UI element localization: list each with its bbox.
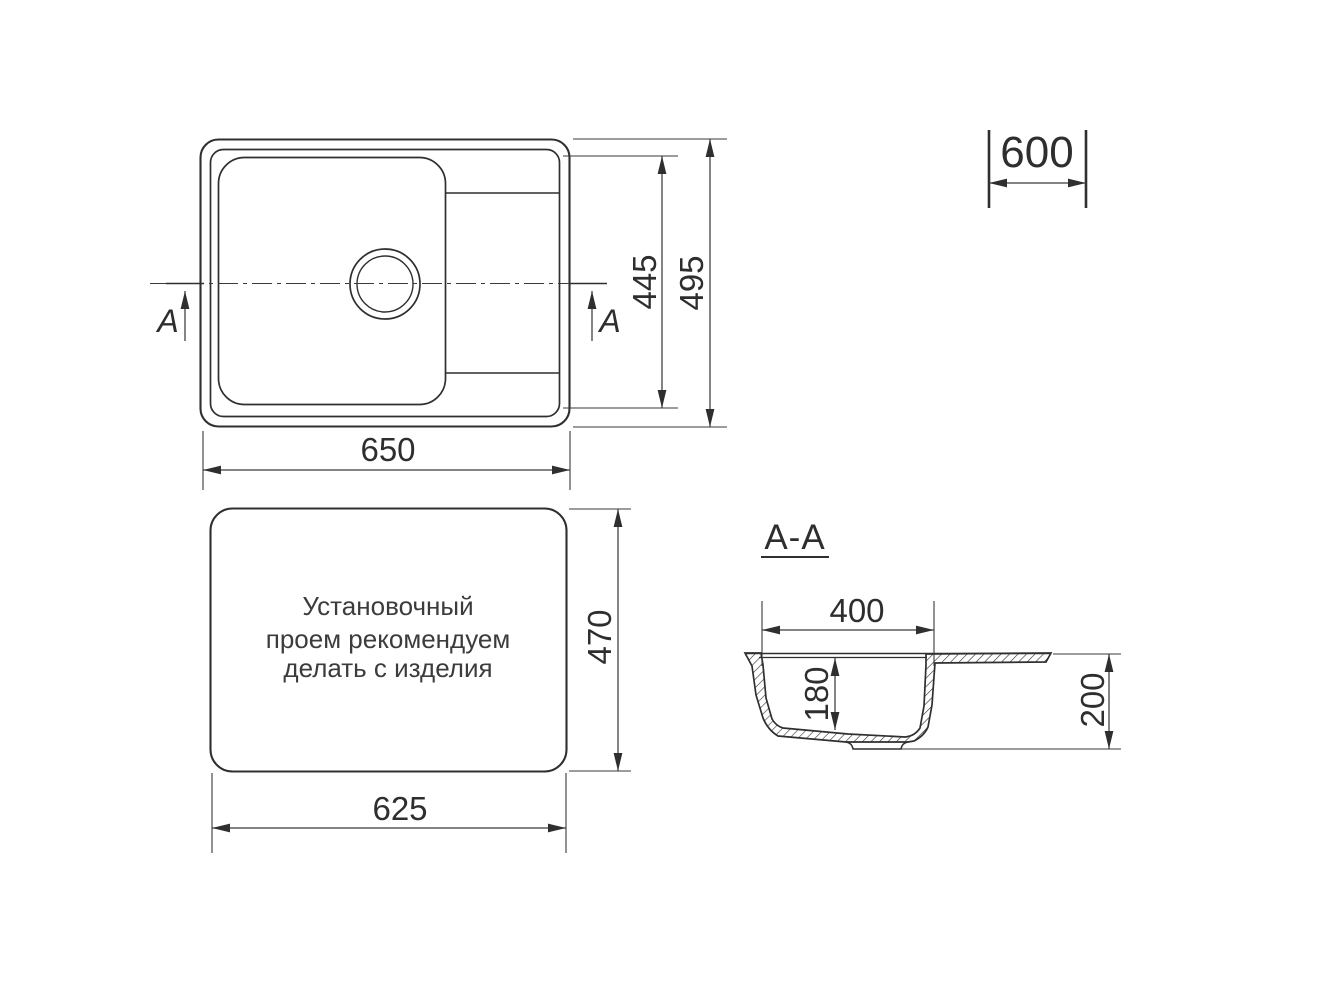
dimension-470: 470	[569, 509, 631, 771]
dimension-value: 400	[829, 592, 884, 629]
technical-drawing-canvas: A A 650 445 495	[0, 0, 1330, 1000]
dimension-value: 625	[372, 790, 427, 827]
installation-view: Установочный проем рекомендуем делать с …	[211, 509, 632, 854]
dimension-value: 495	[673, 255, 710, 310]
installation-note-line1: Установочный	[302, 591, 473, 621]
dimension-445: 445	[563, 156, 678, 408]
dimension-value: 650	[360, 431, 415, 468]
dimension-value: 600	[1000, 128, 1073, 177]
section-view: A-A 400 180 200	[745, 518, 1121, 749]
installation-note-line3: делать с изделия	[283, 653, 492, 683]
dimension-value: 180	[798, 666, 835, 721]
dimension-650: 650	[203, 431, 570, 490]
dimension-value: 470	[581, 609, 618, 664]
dimension-value: 445	[626, 254, 663, 309]
section-cut-right: A	[570, 284, 621, 342]
section-title: A-A	[764, 518, 825, 557]
installation-note-line2: проем рекомендуем	[266, 624, 511, 654]
section-label-right: A	[597, 303, 620, 339]
dimension-180: 180	[798, 658, 835, 730]
sink-body-section	[745, 653, 1051, 742]
dimension-600-cabinet: 600	[989, 128, 1086, 208]
dimension-400: 400	[762, 592, 934, 666]
dimension-value: 200	[1074, 672, 1111, 727]
sink-dimension-drawing: A A 650 445 495	[0, 0, 1330, 1000]
section-label-left: A	[155, 303, 178, 339]
bowl-outline	[219, 158, 446, 405]
drain-boss-outline	[846, 742, 908, 749]
section-cut-left: A	[155, 284, 204, 342]
dimension-625: 625	[212, 773, 566, 853]
top-view: A A 650 445 495	[150, 128, 1086, 490]
